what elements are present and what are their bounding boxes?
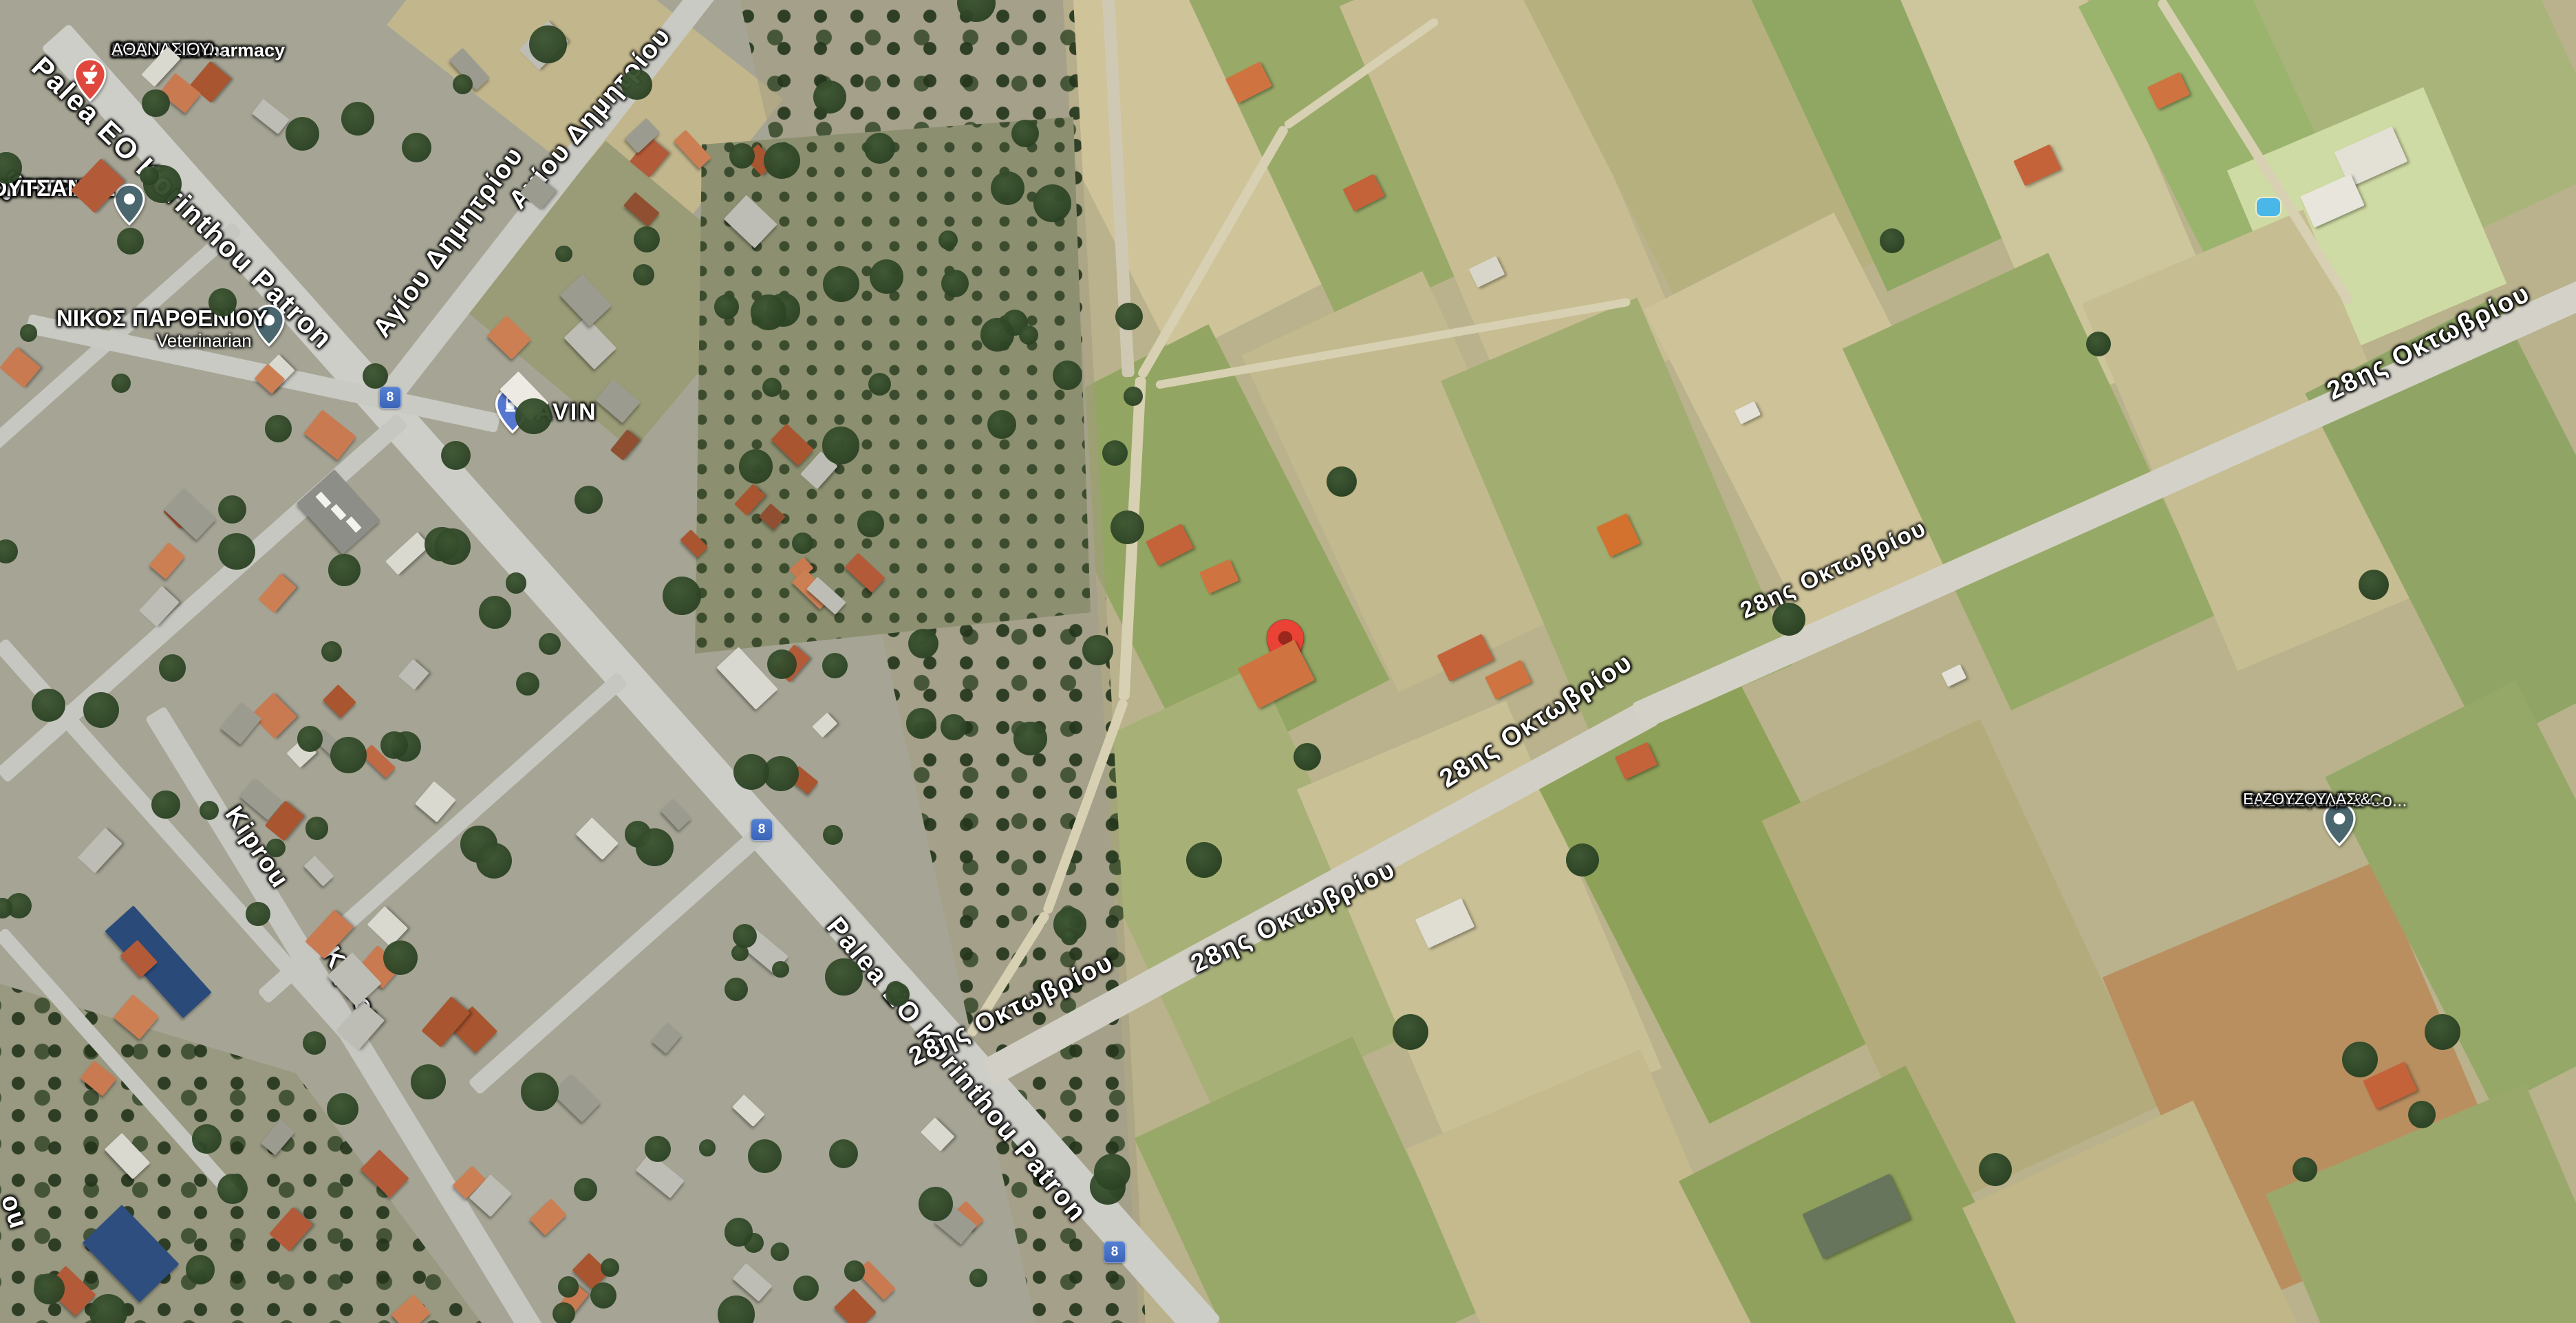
tree [515,398,551,434]
tree [575,486,603,514]
tree [539,633,561,655]
tree [2359,570,2389,600]
tree [2425,1014,2460,1050]
tree [218,495,246,524]
tree [1102,440,1128,466]
tree [764,142,800,179]
tree [1053,361,1082,390]
tree [506,572,527,594]
tree [1566,843,1599,876]
tree [1013,722,1047,755]
tree [341,102,375,136]
tree [1979,1153,2012,1186]
tree [380,731,408,759]
tree [1082,635,1113,665]
tree [844,1260,865,1281]
tree [434,528,471,565]
tree [32,689,65,722]
tree [1294,743,1321,771]
tree [822,427,860,464]
tree [286,117,319,151]
tree [724,978,748,1001]
tree [885,982,910,1007]
tree [1880,228,1904,253]
tree [411,1064,446,1099]
tree [1772,603,1805,636]
tree [793,1276,819,1301]
place-label-veterinarian-category: Veterinarian [156,330,252,352]
tree [200,801,219,820]
tree [724,1218,753,1247]
tree [829,1139,858,1168]
tree [305,817,328,839]
tree [555,246,572,262]
tree [2086,332,2111,356]
tree [1011,120,1039,147]
tree [1061,928,1078,945]
map-canvas[interactable]: Palea EO Korinthou Patron Palea EO Korin… [0,0,2576,1323]
tree [363,363,388,389]
tree [330,737,367,773]
tree [767,649,797,679]
varveris-line4: Ε. ΖΟΥΖΟΥΛΑΣ &... [2243,790,2384,808]
tree [186,1255,215,1284]
route-shield-8: 8 [751,819,773,841]
tree [823,266,859,303]
tree [1124,387,1143,406]
tree [941,270,969,297]
tree [151,790,180,819]
tree [941,714,967,740]
tree [980,318,1014,352]
tree [762,378,782,397]
pharmacy-pin-icon[interactable] [74,58,107,102]
tree [297,726,323,751]
tree [34,1273,64,1304]
tree [1393,1014,1428,1050]
tree [748,1139,782,1173]
tree [1115,303,1143,330]
tree [453,74,473,94]
tree [142,89,169,117]
tree [645,1136,671,1162]
tree [529,25,567,63]
tree [870,259,903,293]
tree [919,1187,953,1221]
tree [2342,1042,2378,1077]
tree [714,294,739,319]
tree [739,449,773,483]
tree [83,692,120,729]
tree [383,940,418,975]
tree [938,230,958,250]
tree [663,577,701,615]
swimming-pool [2257,198,2280,216]
tree [908,629,938,658]
tree [441,441,470,470]
tree [265,415,292,442]
tree [266,839,286,858]
tree [217,1174,248,1204]
tree [159,654,186,681]
tree [321,641,342,662]
tree [2293,1157,2317,1182]
tree [823,825,843,845]
tree [857,510,884,537]
building [1485,660,1532,700]
tree [140,166,159,186]
tree [1110,510,1144,544]
tree [1327,466,1357,497]
tree [1186,842,1222,878]
tree [111,374,131,393]
tree [1094,1154,1130,1190]
tree [2408,1101,2436,1128]
tree [733,924,757,948]
route-shield-8: 8 [1104,1241,1126,1263]
tree [729,143,755,169]
tree [328,554,361,586]
tree [246,902,270,927]
tree [303,1031,326,1055]
tree [868,373,891,396]
tree [621,69,652,100]
olive-orchard [688,110,1094,660]
tree [521,1073,559,1111]
place-label-veterinarian-name[interactable]: ΝΙΚΟΣ ΠΑΡΘΕΝΙΟΥ [56,305,268,332]
tree [813,80,846,114]
tree [771,1243,789,1261]
tree [479,596,511,628]
tree [218,533,255,570]
tree [772,961,788,978]
tree [476,843,512,879]
tree [825,958,863,996]
tree [327,1093,358,1125]
place-pin-icon[interactable] [114,183,145,226]
terrain-layer [0,0,2576,1323]
route-shield-8: 8 [379,387,401,409]
tree [208,288,237,316]
tree [636,828,674,866]
tree [402,133,431,162]
tree [906,708,936,738]
building [1942,665,1967,687]
tree [733,754,769,790]
tree [192,1124,222,1154]
tree [552,1302,575,1323]
